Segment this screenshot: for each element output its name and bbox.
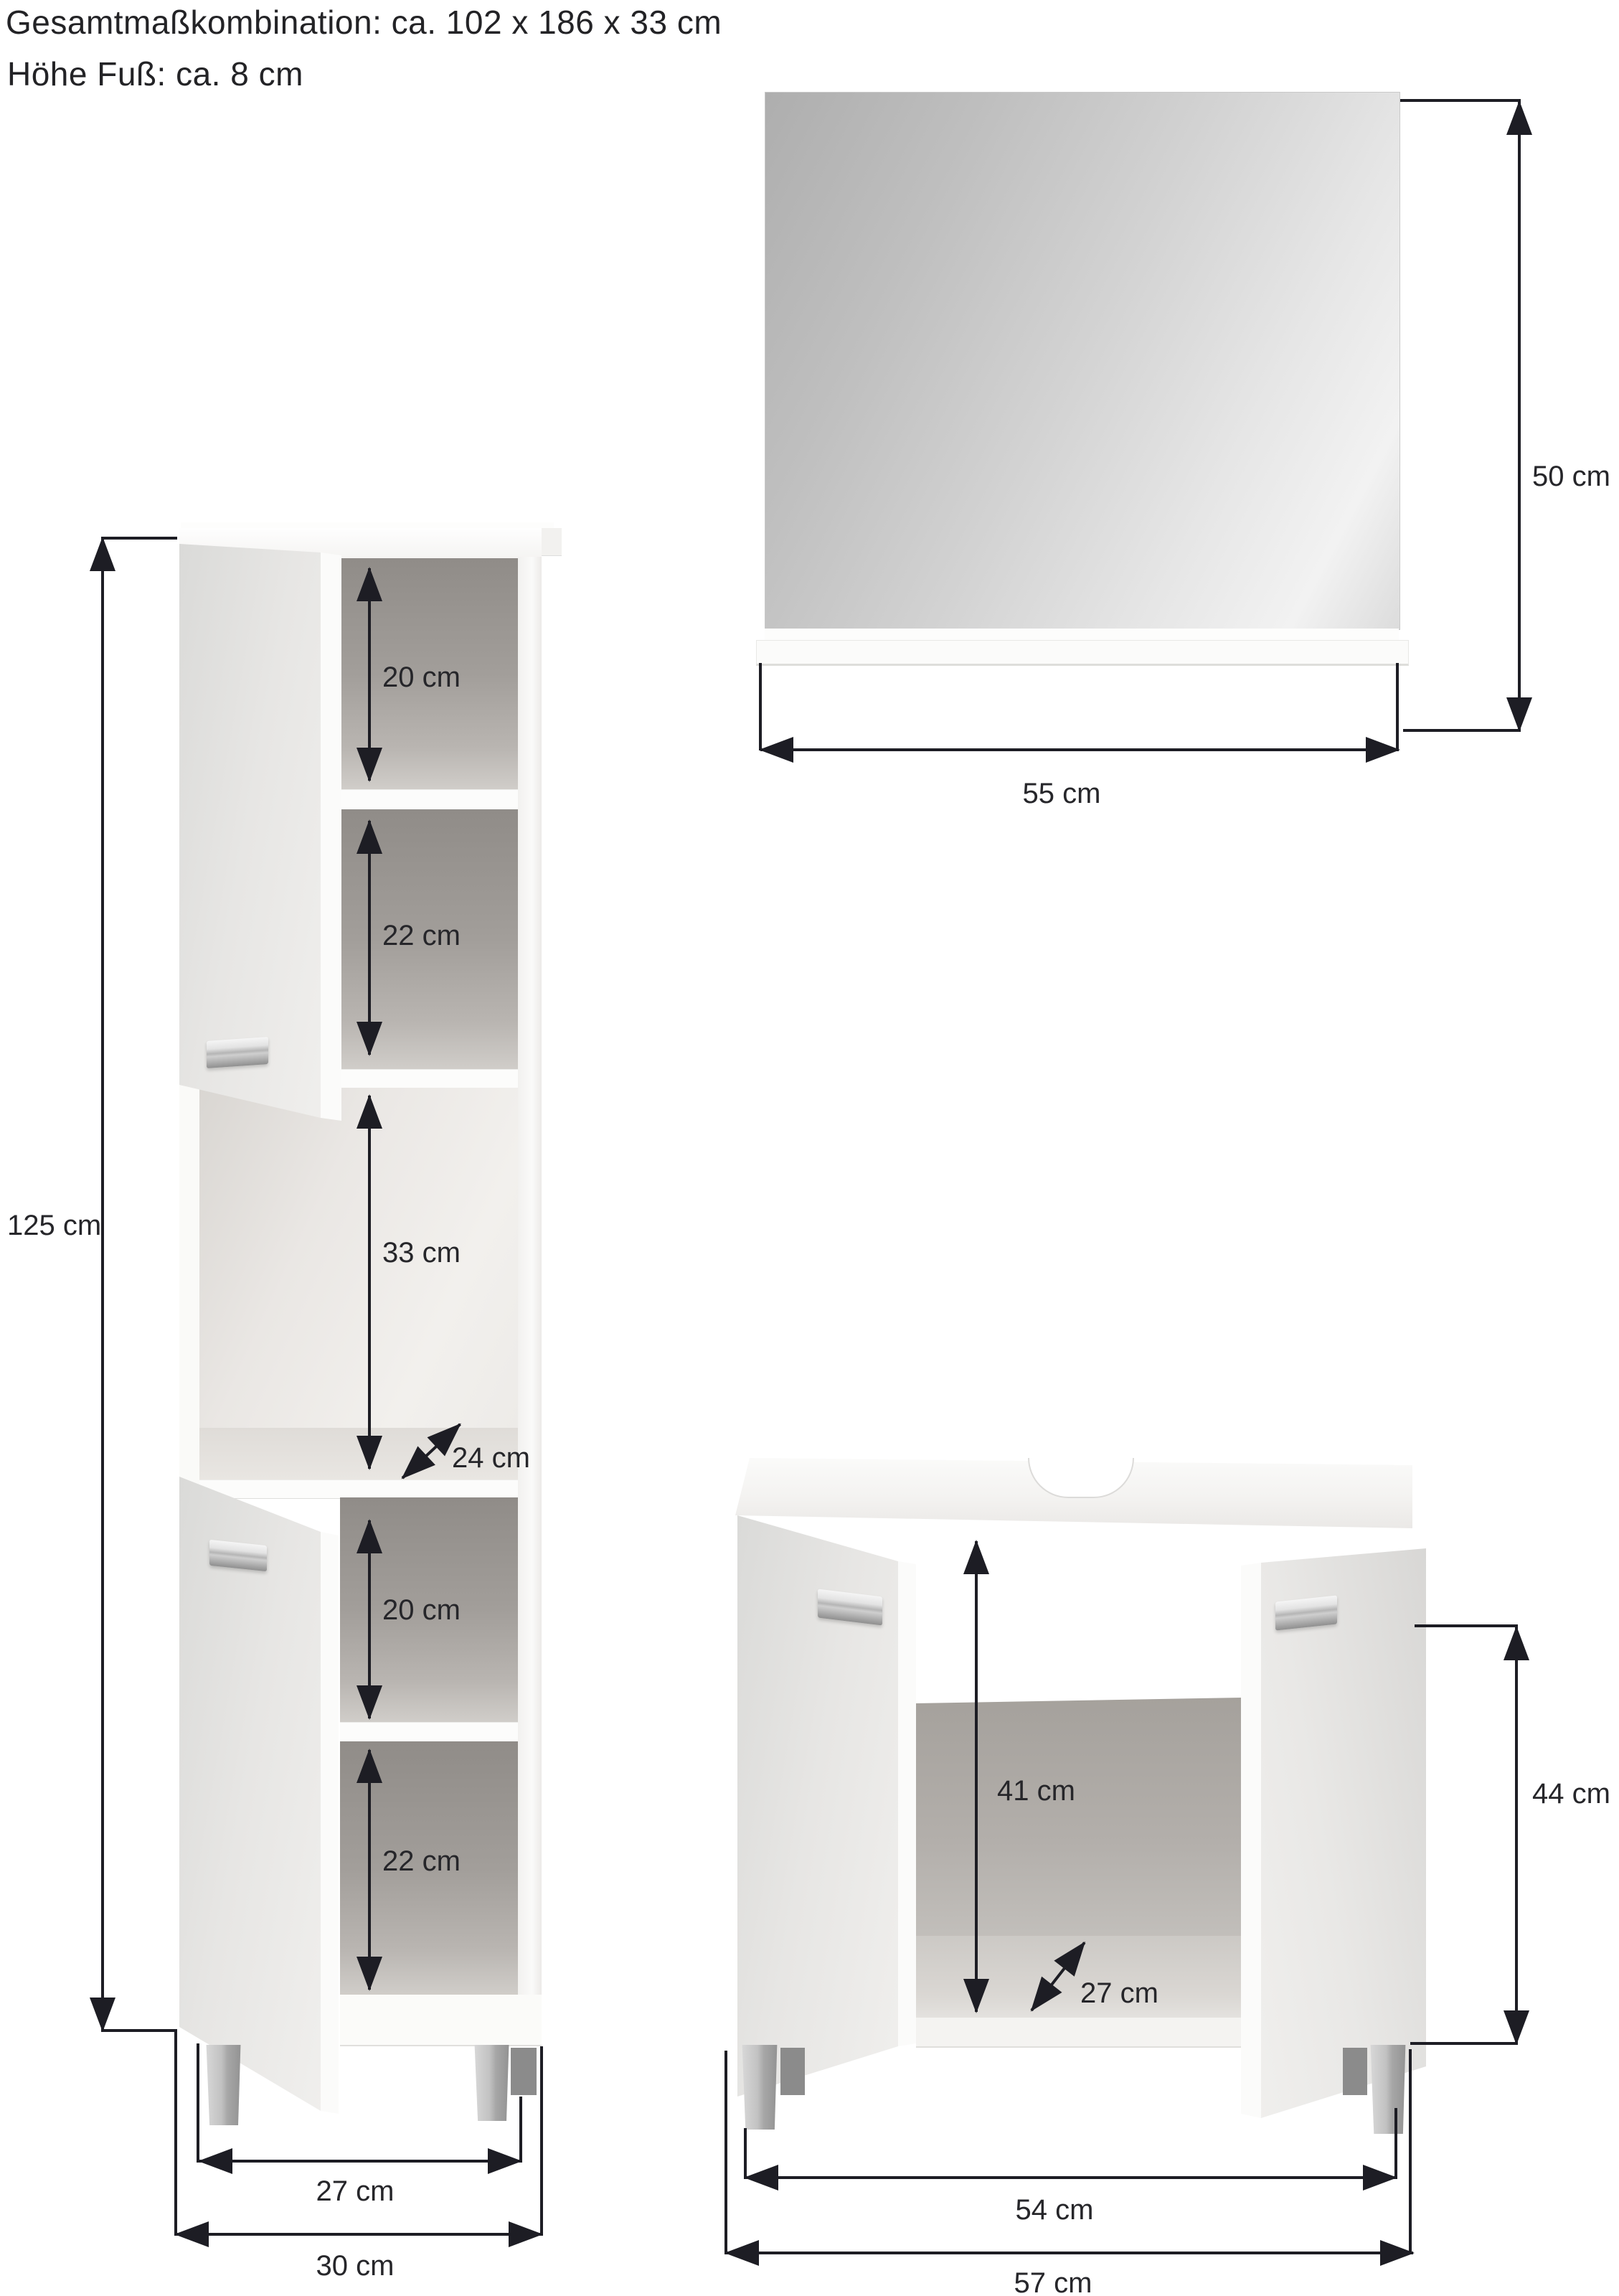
header-total-dimensions: Gesamtmaßkombination: ca. 102 x 186 x 33… [6, 3, 722, 42]
arrowhead-up-icon [357, 1094, 382, 1129]
door-face [179, 1475, 339, 2114]
arrowhead-right-icon [1366, 737, 1400, 763]
tall-width-extension-right [540, 2046, 543, 2236]
arrowhead-down-icon [357, 1685, 382, 1720]
washbasin-right-door [1241, 1544, 1426, 2122]
mirror-width-label: 55 cm [997, 778, 1126, 810]
cabinet-foot-back [1343, 2048, 1367, 2095]
arrowhead-up-icon [357, 567, 382, 601]
arrowhead-up-icon [1506, 100, 1532, 135]
washbasin-width-extension-right [1409, 2049, 1412, 2254]
cabinet-foot [471, 2045, 512, 2121]
arrowhead-left-icon [724, 2240, 759, 2266]
arrowhead-up-icon [90, 537, 115, 571]
mirror-glass [765, 92, 1400, 630]
open-niche [199, 1088, 518, 1479]
arrowhead-down-icon [357, 748, 382, 782]
washbasin-bottom-front [916, 2018, 1241, 2048]
tall-cabinet-lower-door [179, 1475, 339, 2114]
product-dimension-diagram: Gesamtmaßkombination: ca. 102 x 186 x 33… [0, 0, 1619, 2296]
tall-depth-label: 24 cm [452, 1442, 530, 1474]
arrowhead-left-icon [744, 2165, 778, 2191]
washbasin-height-extension-top [1415, 1624, 1518, 1627]
shelf [340, 1722, 518, 1743]
tall-inner-width-extension-left [197, 2043, 199, 2163]
mirror-height-dimension-line [1518, 102, 1521, 730]
tall-cabinet-top-overhang [542, 528, 562, 556]
arrowhead-up-icon [357, 1749, 382, 1783]
compartment1-label: 20 cm [382, 662, 461, 694]
tall-cabinet-left-edge [179, 1080, 200, 1510]
arrowhead-right-icon [1380, 2240, 1415, 2266]
arrowhead-down-icon [357, 1022, 382, 1056]
tall-inner-width-dimension-line [199, 2160, 521, 2163]
mirror-width-dimension-line [760, 748, 1399, 751]
arrowhead-down-icon [357, 1957, 382, 1991]
door-face [1241, 1544, 1426, 2122]
arrowhead-right-icon [509, 2221, 543, 2247]
arrowhead-up-icon [963, 1540, 989, 1574]
arrowhead-right-icon [488, 2148, 522, 2174]
mirror-shelf [756, 640, 1409, 666]
compartment1-dimension-line [368, 568, 371, 781]
washbasin-inner-width-label: 54 cm [990, 2194, 1119, 2226]
shelf [340, 789, 518, 811]
compartment4-label: 20 cm [382, 1594, 461, 1627]
compartment3-dimension-line [368, 1096, 371, 1469]
washbasin-inner-height-label: 41 cm [997, 1775, 1075, 1807]
compartment2-label: 22 cm [382, 920, 461, 952]
compartment5-dimension-line [368, 1750, 371, 1990]
washbasin-width-extension-left [724, 2051, 727, 2254]
compartment3-label: 33 cm [382, 1237, 461, 1269]
washbasin-height-extension-bottom [1410, 2042, 1518, 2045]
arrowhead-down-icon [357, 1436, 382, 1470]
tall-width-dimension-line [176, 2233, 542, 2236]
cabinet-foot-back [511, 2048, 537, 2095]
arrowhead-down-icon [1504, 2010, 1529, 2045]
mirror-height-extension-bottom [1403, 729, 1521, 732]
washbasin-back-panel [916, 1698, 1241, 1939]
arrowhead-left-icon [174, 2221, 209, 2247]
arrowhead-up-icon [357, 1519, 382, 1553]
cabinet-foot [1367, 2045, 1409, 2134]
arrowhead-left-icon [198, 2148, 232, 2174]
cabinet-foot-back [780, 2048, 805, 2095]
arrowhead-down-icon [1506, 697, 1532, 732]
tall-cabinet-right-side [518, 557, 542, 2045]
compartment2-dimension-line [368, 821, 371, 1055]
tall-width-label: 30 cm [291, 2250, 420, 2282]
tall-cabinet-bottom-front [340, 1995, 542, 2046]
header-foot-height: Höhe Fuß: ca. 8 cm [7, 55, 303, 93]
compartment4-dimension-line [368, 1520, 371, 1718]
washbasin-width-label: 57 cm [988, 2267, 1118, 2296]
washbasin-depth-label: 27 cm [1080, 1977, 1158, 2010]
mirror-height-extension-top [1400, 99, 1521, 102]
tall-height-label: 125 cm [7, 1210, 83, 1242]
arrowhead-up-icon [357, 819, 382, 854]
tall-width-extension-left [174, 2031, 177, 2236]
washbasin-inner-width-dimension-line [745, 2176, 1396, 2179]
arrowhead-right-icon [1363, 2165, 1397, 2191]
cabinet-foot [739, 2045, 780, 2130]
arrowhead-left-icon [759, 737, 793, 763]
tall-height-dimension-line [101, 538, 104, 2031]
compartment5-label: 22 cm [382, 1845, 461, 1878]
washbasin-height-dimension-line [1515, 1627, 1518, 2043]
tall-cabinet-upper-door [179, 542, 341, 1124]
door-face [179, 542, 341, 1124]
arrowhead-up-icon [1504, 1626, 1529, 1660]
shelf [340, 1069, 518, 1089]
arrowhead-down-icon [963, 1979, 989, 2013]
tall-inner-width-label: 27 cm [291, 2175, 420, 2208]
cabinet-foot [203, 2045, 244, 2125]
arrowhead-down-icon [90, 1998, 115, 2032]
washbasin-width-dimension-line [726, 2252, 1413, 2254]
door-handle [207, 1037, 268, 1068]
washbasin-height-label: 44 cm [1532, 1778, 1610, 1810]
mirror-height-label: 50 cm [1532, 461, 1610, 493]
washbasin-inner-height-dimension-line [975, 1541, 978, 2012]
